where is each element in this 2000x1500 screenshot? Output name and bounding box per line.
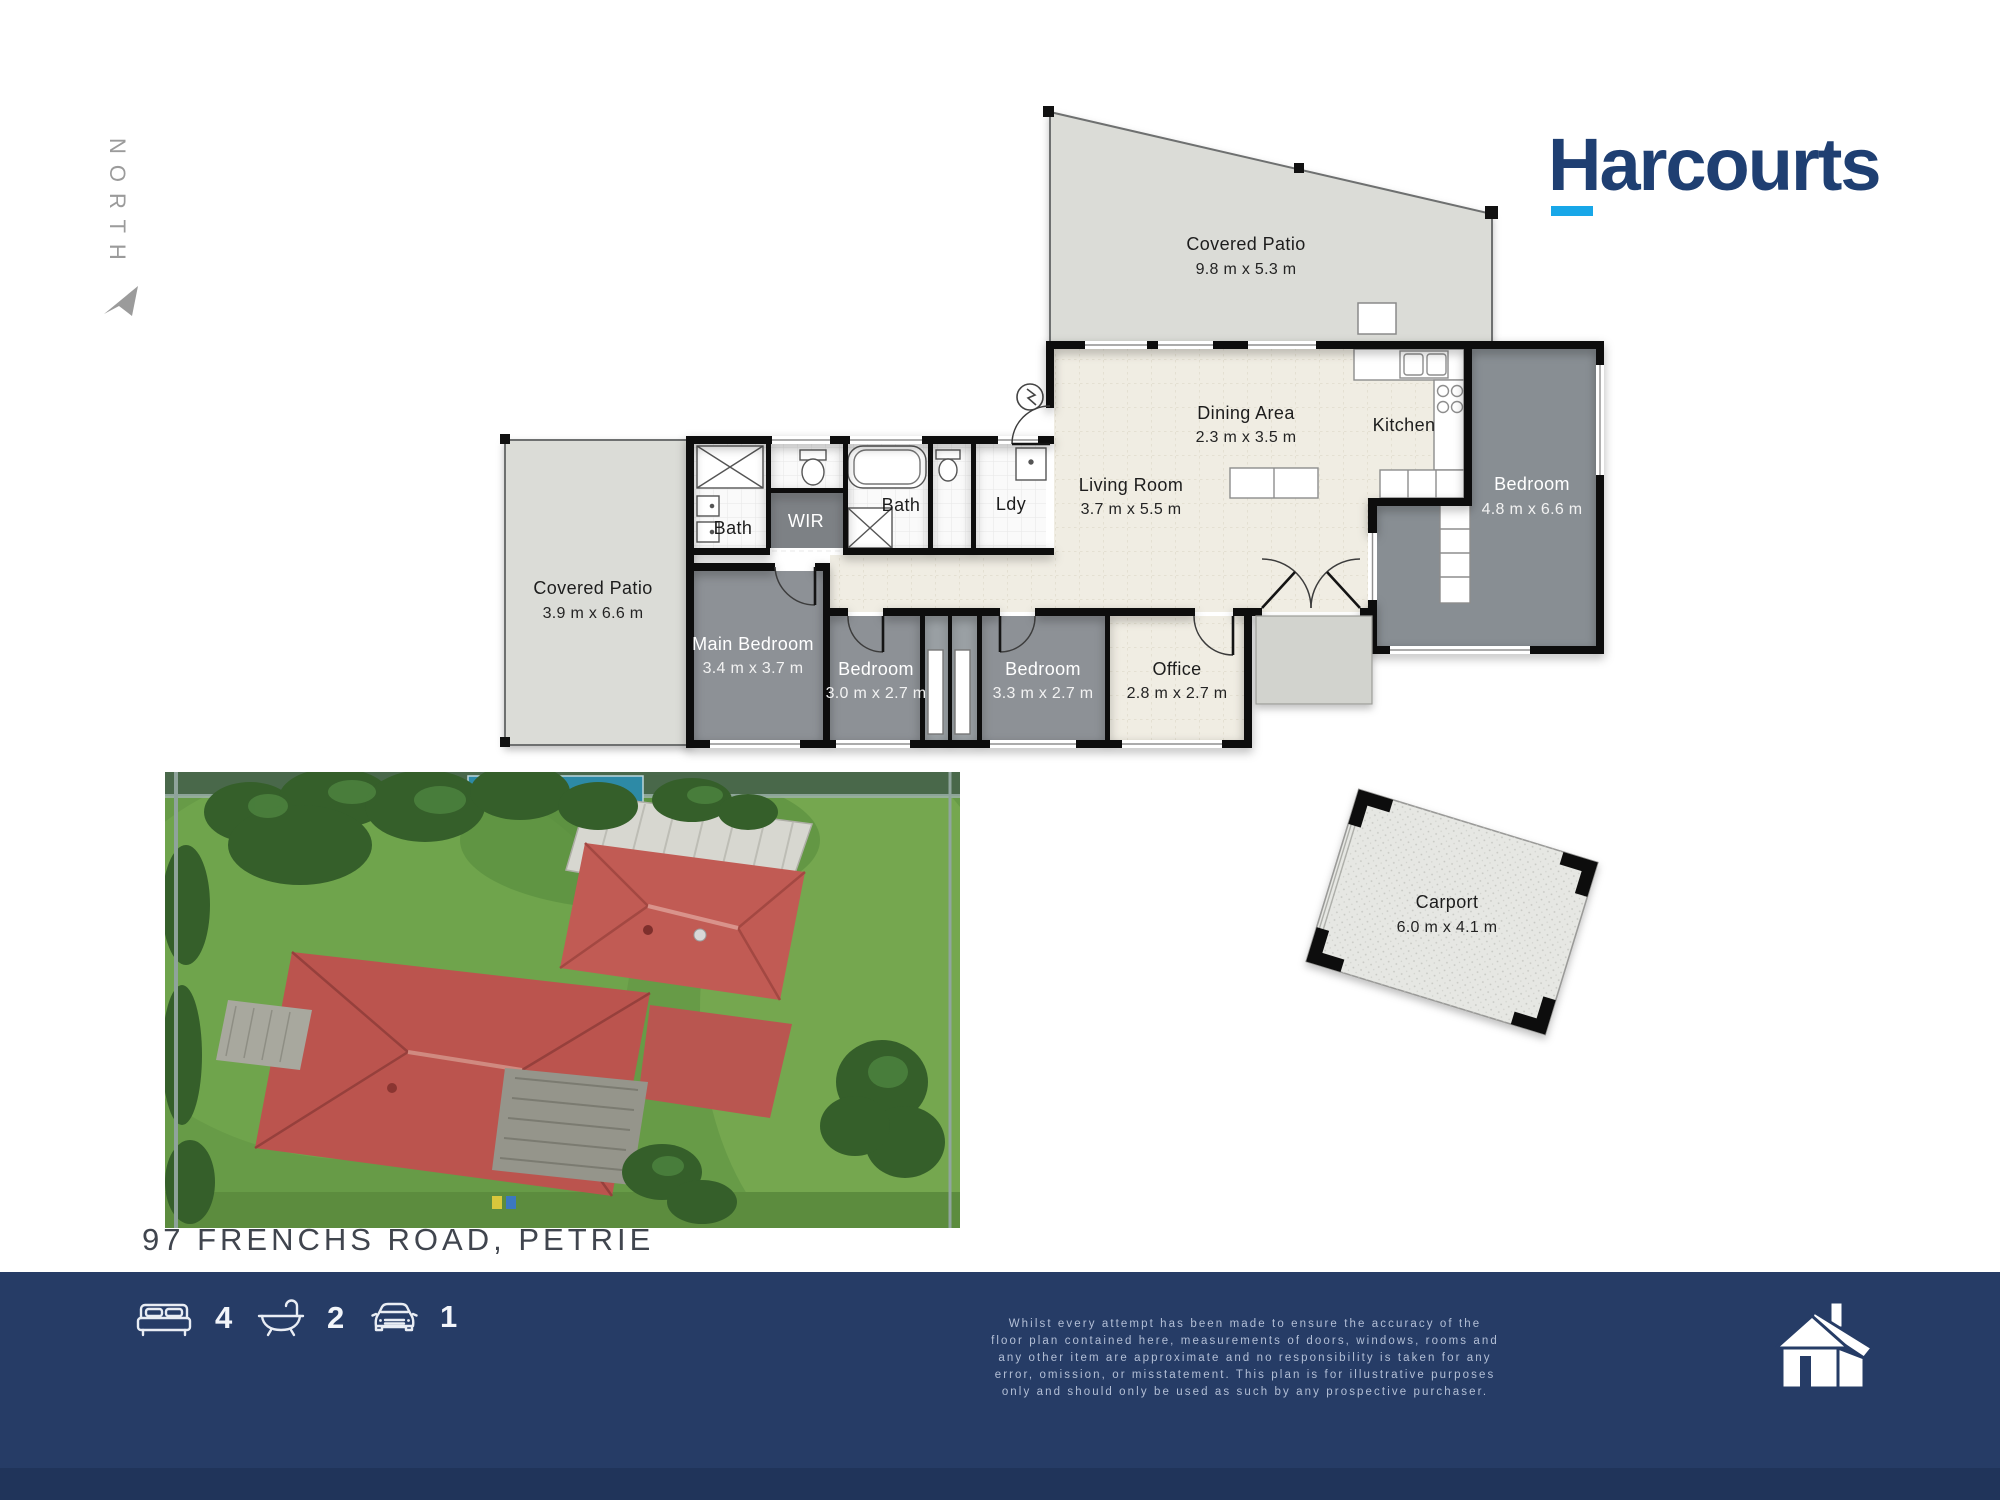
- dims-living: 3.7 m x 5.5 m: [1081, 501, 1182, 518]
- dims-dining: 2.3 m x 3.5 m: [1196, 429, 1297, 446]
- harcourts-logo-underline: [1551, 206, 1593, 216]
- carport: Carport 6.0 m x 4.1 m: [1306, 789, 1598, 1034]
- entry-porch: [1256, 616, 1372, 704]
- disclaimer-line: Whilst every attempt has been made to en…: [925, 1316, 1565, 1333]
- label-wir: WIR: [788, 511, 824, 531]
- bath-icon: [255, 1296, 307, 1340]
- label-office: Office: [1152, 659, 1201, 679]
- house-icon: [1768, 1296, 1880, 1396]
- dims-office: 2.8 m x 2.7 m: [1127, 685, 1228, 702]
- car-icon: [370, 1296, 420, 1338]
- label-bedroom-right: Bedroom: [1494, 474, 1570, 494]
- dims-patio-left: 3.9 m x 6.6 m: [543, 605, 644, 622]
- label-patio-left: Covered Patio: [533, 578, 652, 598]
- dims-bedroom2: 3.0 m x 2.7 m: [826, 685, 927, 702]
- patio-bench: [1358, 303, 1396, 334]
- bedrooms-count: 4: [215, 1300, 232, 1336]
- label-bath1: Bath: [714, 518, 753, 538]
- bed-icon: [133, 1296, 195, 1340]
- disclaimer-line: any other item are approximate and no re…: [925, 1350, 1565, 1367]
- harcourts-logo-text: Harcourts: [1548, 128, 1908, 202]
- label-living: Living Room: [1079, 475, 1183, 495]
- label-bedroom2: Bedroom: [838, 659, 914, 679]
- bedrooms-stat: 4: [133, 1296, 232, 1340]
- dims-patio-top: 9.8 m x 5.3 m: [1196, 261, 1297, 278]
- harcourts-logo: Harcourts: [1548, 128, 1908, 216]
- bathrooms-stat: 2: [255, 1296, 344, 1340]
- disclaimer-line: error, omission, or misstatement. This p…: [925, 1367, 1565, 1384]
- label-main-bedroom: Main Bedroom: [692, 634, 814, 654]
- label-ldy: Ldy: [996, 494, 1026, 514]
- dims-main-bedroom: 3.4 m x 3.7 m: [703, 660, 804, 677]
- hot-water-unit: [1017, 384, 1043, 410]
- dims-bedroom-right: 4.8 m x 6.6 m: [1482, 501, 1583, 518]
- cars-stat: 1: [370, 1296, 457, 1338]
- label-kitchen: Kitchen: [1373, 415, 1436, 435]
- north-arrow-icon: [102, 282, 142, 320]
- label-dining: Dining Area: [1197, 403, 1295, 423]
- brochure-page: Covered Patio 9.8 m x 5.3 m Covered Pati…: [0, 0, 2000, 1500]
- disclaimer-line: only and should only be used as such by …: [925, 1384, 1565, 1401]
- north-label: NORTH: [104, 138, 130, 271]
- cars-count: 1: [440, 1299, 457, 1335]
- label-bedroom3: Bedroom: [1005, 659, 1081, 679]
- covered-patio-top: [1050, 112, 1492, 345]
- property-address: 97 FRENCHS ROAD, PETRIE: [142, 1222, 654, 1258]
- disclaimer-line: floor plan contained here, measurements …: [925, 1333, 1565, 1350]
- label-patio-top: Covered Patio: [1186, 234, 1305, 254]
- label-bath2: Bath: [882, 495, 921, 515]
- dims-bedroom3: 3.3 m x 2.7 m: [993, 685, 1094, 702]
- aerial-photo: [90, 750, 1020, 1270]
- dims-carport: 6.0 m x 4.1 m: [1397, 919, 1498, 936]
- disclaimer-text: Whilst every attempt has been made to en…: [925, 1316, 1565, 1401]
- label-carport: Carport: [1416, 892, 1479, 912]
- footer-bar-edge: [0, 1468, 2000, 1500]
- bathrooms-count: 2: [327, 1300, 344, 1336]
